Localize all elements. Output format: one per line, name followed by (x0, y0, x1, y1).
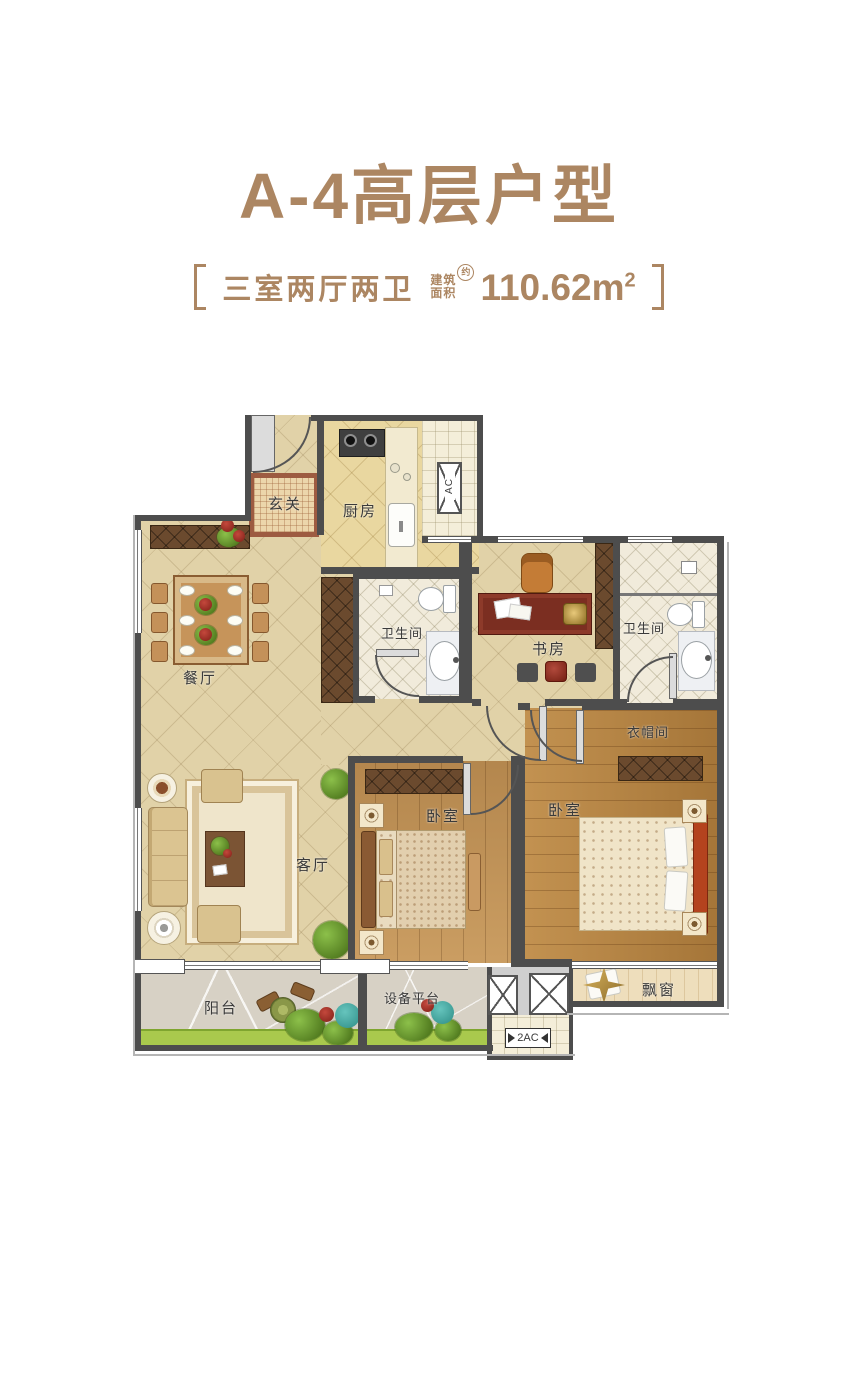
armchair (197, 905, 241, 943)
room-label-bath2: 卫生间 (623, 622, 665, 635)
bedroom-small-door (463, 763, 471, 815)
room-label-balcony: 阳台 (204, 1001, 238, 1016)
faucet-icon (399, 521, 403, 532)
window-sill (320, 959, 390, 974)
window-sill (133, 959, 185, 974)
plate (227, 615, 243, 626)
wall (419, 696, 459, 703)
kitchen-counter (385, 427, 418, 569)
layout-text: 三室两厅两卫 (222, 266, 414, 308)
area-value: 110.62m2 (480, 269, 635, 306)
wall (570, 1001, 720, 1007)
room-label-living: 客厅 (296, 858, 330, 873)
toilet-tank (443, 585, 456, 613)
room-label-entry: 玄关 (268, 497, 302, 512)
room-label-bay-window: 飘窗 (642, 983, 676, 998)
armchair (201, 769, 243, 803)
towel-rack (379, 585, 393, 596)
wall (353, 696, 375, 703)
side-table (147, 773, 177, 803)
nightstand (682, 912, 707, 936)
burner-icon (364, 434, 377, 447)
area-label: 建筑 面积 约 (430, 274, 470, 300)
window (498, 536, 583, 543)
shower-head-icon (681, 561, 697, 574)
dining-chair (151, 641, 168, 662)
plate (227, 645, 243, 656)
room-label-bedroom-small: 卧室 (426, 809, 460, 824)
plate (179, 645, 195, 656)
desk-chair (521, 553, 553, 593)
plant (395, 1013, 433, 1041)
wall (135, 515, 251, 521)
shaft-box (529, 973, 569, 1015)
plant (313, 921, 351, 959)
outline (133, 1054, 575, 1056)
floor-plan: AC 2AC 玄关 厨房 卫生间 书房 卫生间 餐厅 客厅 卧室 卧室 衣帽间 … (133, 403, 729, 1065)
balcony-door-window (185, 961, 320, 970)
dining-chair (252, 641, 269, 662)
bracket-left-icon (194, 264, 206, 310)
outline (133, 515, 135, 1055)
bay-window-opening (572, 961, 717, 969)
outline (727, 542, 729, 1009)
dining-chair (252, 583, 269, 604)
wall (613, 539, 620, 703)
pillow (664, 870, 689, 911)
nightstand (682, 799, 707, 823)
window (390, 961, 468, 970)
stool (545, 661, 567, 682)
room-label-equipment: 设备平台 (384, 992, 440, 1005)
dining-chair (151, 583, 168, 604)
wall (582, 703, 719, 710)
wall (358, 967, 367, 1047)
plant-pot (335, 1003, 360, 1028)
outline (567, 1013, 729, 1015)
page-title: A-4高层户型 (0, 160, 858, 234)
closet-cabinet (618, 756, 703, 781)
stool (517, 663, 538, 682)
bracket-right-icon (652, 264, 664, 310)
wall (477, 415, 483, 541)
room-label-kitchen: 厨房 (343, 504, 377, 519)
pillow (664, 826, 689, 867)
toilet-tank (692, 601, 705, 628)
wall (317, 415, 324, 535)
plant (321, 769, 351, 799)
toilet (418, 587, 444, 611)
wall (348, 756, 355, 967)
pillow (379, 839, 393, 875)
wall (311, 415, 483, 421)
kitchen-item (403, 473, 411, 481)
wall (135, 1045, 493, 1051)
ac2-label: 2AC (505, 1033, 551, 1044)
faucet-icon (705, 655, 711, 661)
study-cabinet (595, 543, 614, 649)
wardrobe (365, 769, 463, 794)
wall (518, 959, 572, 967)
plate (227, 585, 243, 596)
shaft-box (488, 975, 518, 1015)
ac-label: AC (445, 472, 455, 500)
burner-icon (344, 434, 357, 447)
kitchen-item (390, 463, 400, 473)
dining-chair (151, 612, 168, 633)
room-label-study: 书房 (532, 642, 566, 657)
subtitle: 三室两厅两卫 建筑 面积 约 110.62m2 (0, 264, 858, 310)
window (628, 536, 672, 543)
plate (179, 615, 195, 626)
hall-cabinet (321, 577, 354, 703)
room-label-bath1: 卫生间 (381, 627, 423, 640)
red-flower (319, 1007, 334, 1022)
coffee-table-paper (212, 864, 227, 876)
red-flower (233, 530, 245, 542)
wall (353, 573, 359, 703)
room-label-bedroom-master: 卧室 (548, 803, 582, 818)
approx-badge: 约 (457, 264, 474, 281)
bed-headboard (361, 831, 376, 928)
bench (468, 853, 481, 911)
bed-blanket (396, 830, 466, 929)
nightstand (359, 930, 384, 955)
plate (179, 585, 195, 596)
wall (353, 573, 459, 579)
red-flower (199, 628, 212, 641)
nightstand (359, 803, 384, 828)
room-label-dining: 餐厅 (183, 671, 217, 686)
room-label-closet: 衣帽间 (627, 726, 669, 739)
toilet (667, 603, 693, 626)
wall (717, 536, 724, 1007)
desk-lamp (563, 603, 587, 625)
wall (348, 756, 463, 763)
red-flower (223, 849, 232, 858)
pillow (379, 881, 393, 917)
shower-divider (620, 593, 717, 596)
desk-papers (508, 604, 532, 621)
wall (472, 699, 481, 706)
stool (575, 663, 596, 682)
red-flower (199, 598, 212, 611)
area-label-line2: 面积 (430, 287, 456, 300)
sofa (148, 807, 188, 907)
dining-chair (252, 612, 269, 633)
side-table (147, 911, 181, 945)
window (428, 536, 471, 543)
wall (459, 539, 472, 703)
